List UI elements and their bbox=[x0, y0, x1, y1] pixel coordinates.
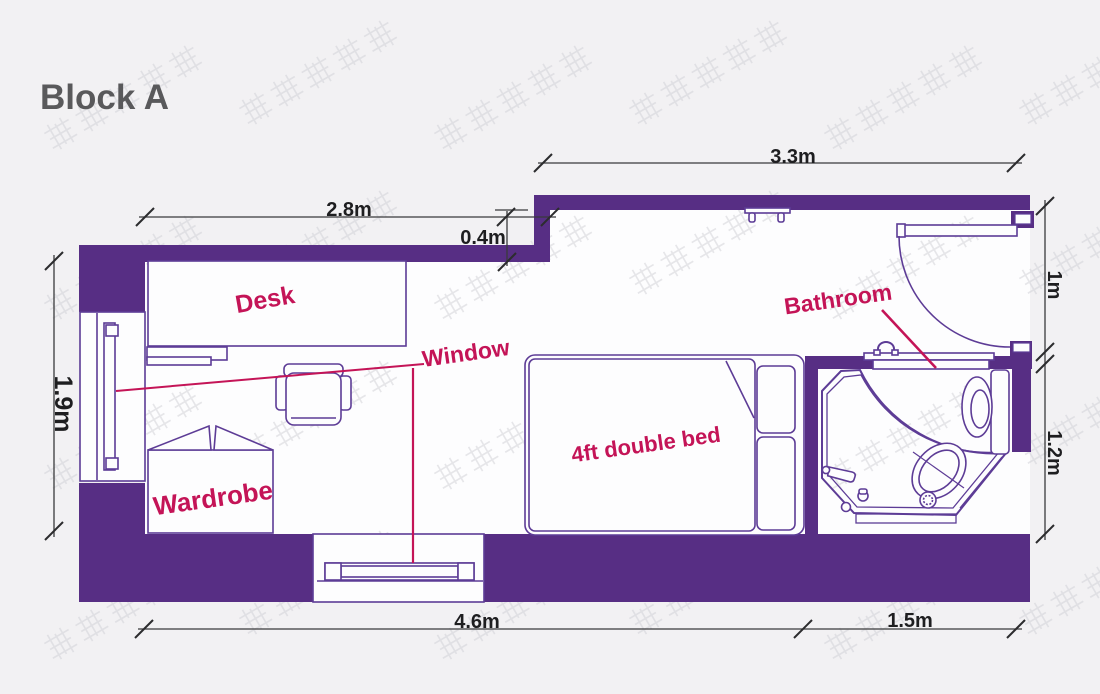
svg-text:1.5m: 1.5m bbox=[887, 610, 933, 632]
svg-text:3.3m: 3.3m bbox=[770, 146, 816, 168]
svg-text:4.6m: 4.6m bbox=[454, 611, 500, 633]
svg-text:Block A: Block A bbox=[40, 78, 169, 117]
svg-text:1.9m: 1.9m bbox=[49, 376, 77, 433]
svg-text:1m: 1m bbox=[1043, 271, 1065, 300]
svg-text:2.8m: 2.8m bbox=[326, 199, 372, 221]
svg-text:1.2m: 1.2m bbox=[1043, 430, 1065, 476]
svg-text:0.4m: 0.4m bbox=[460, 227, 506, 249]
